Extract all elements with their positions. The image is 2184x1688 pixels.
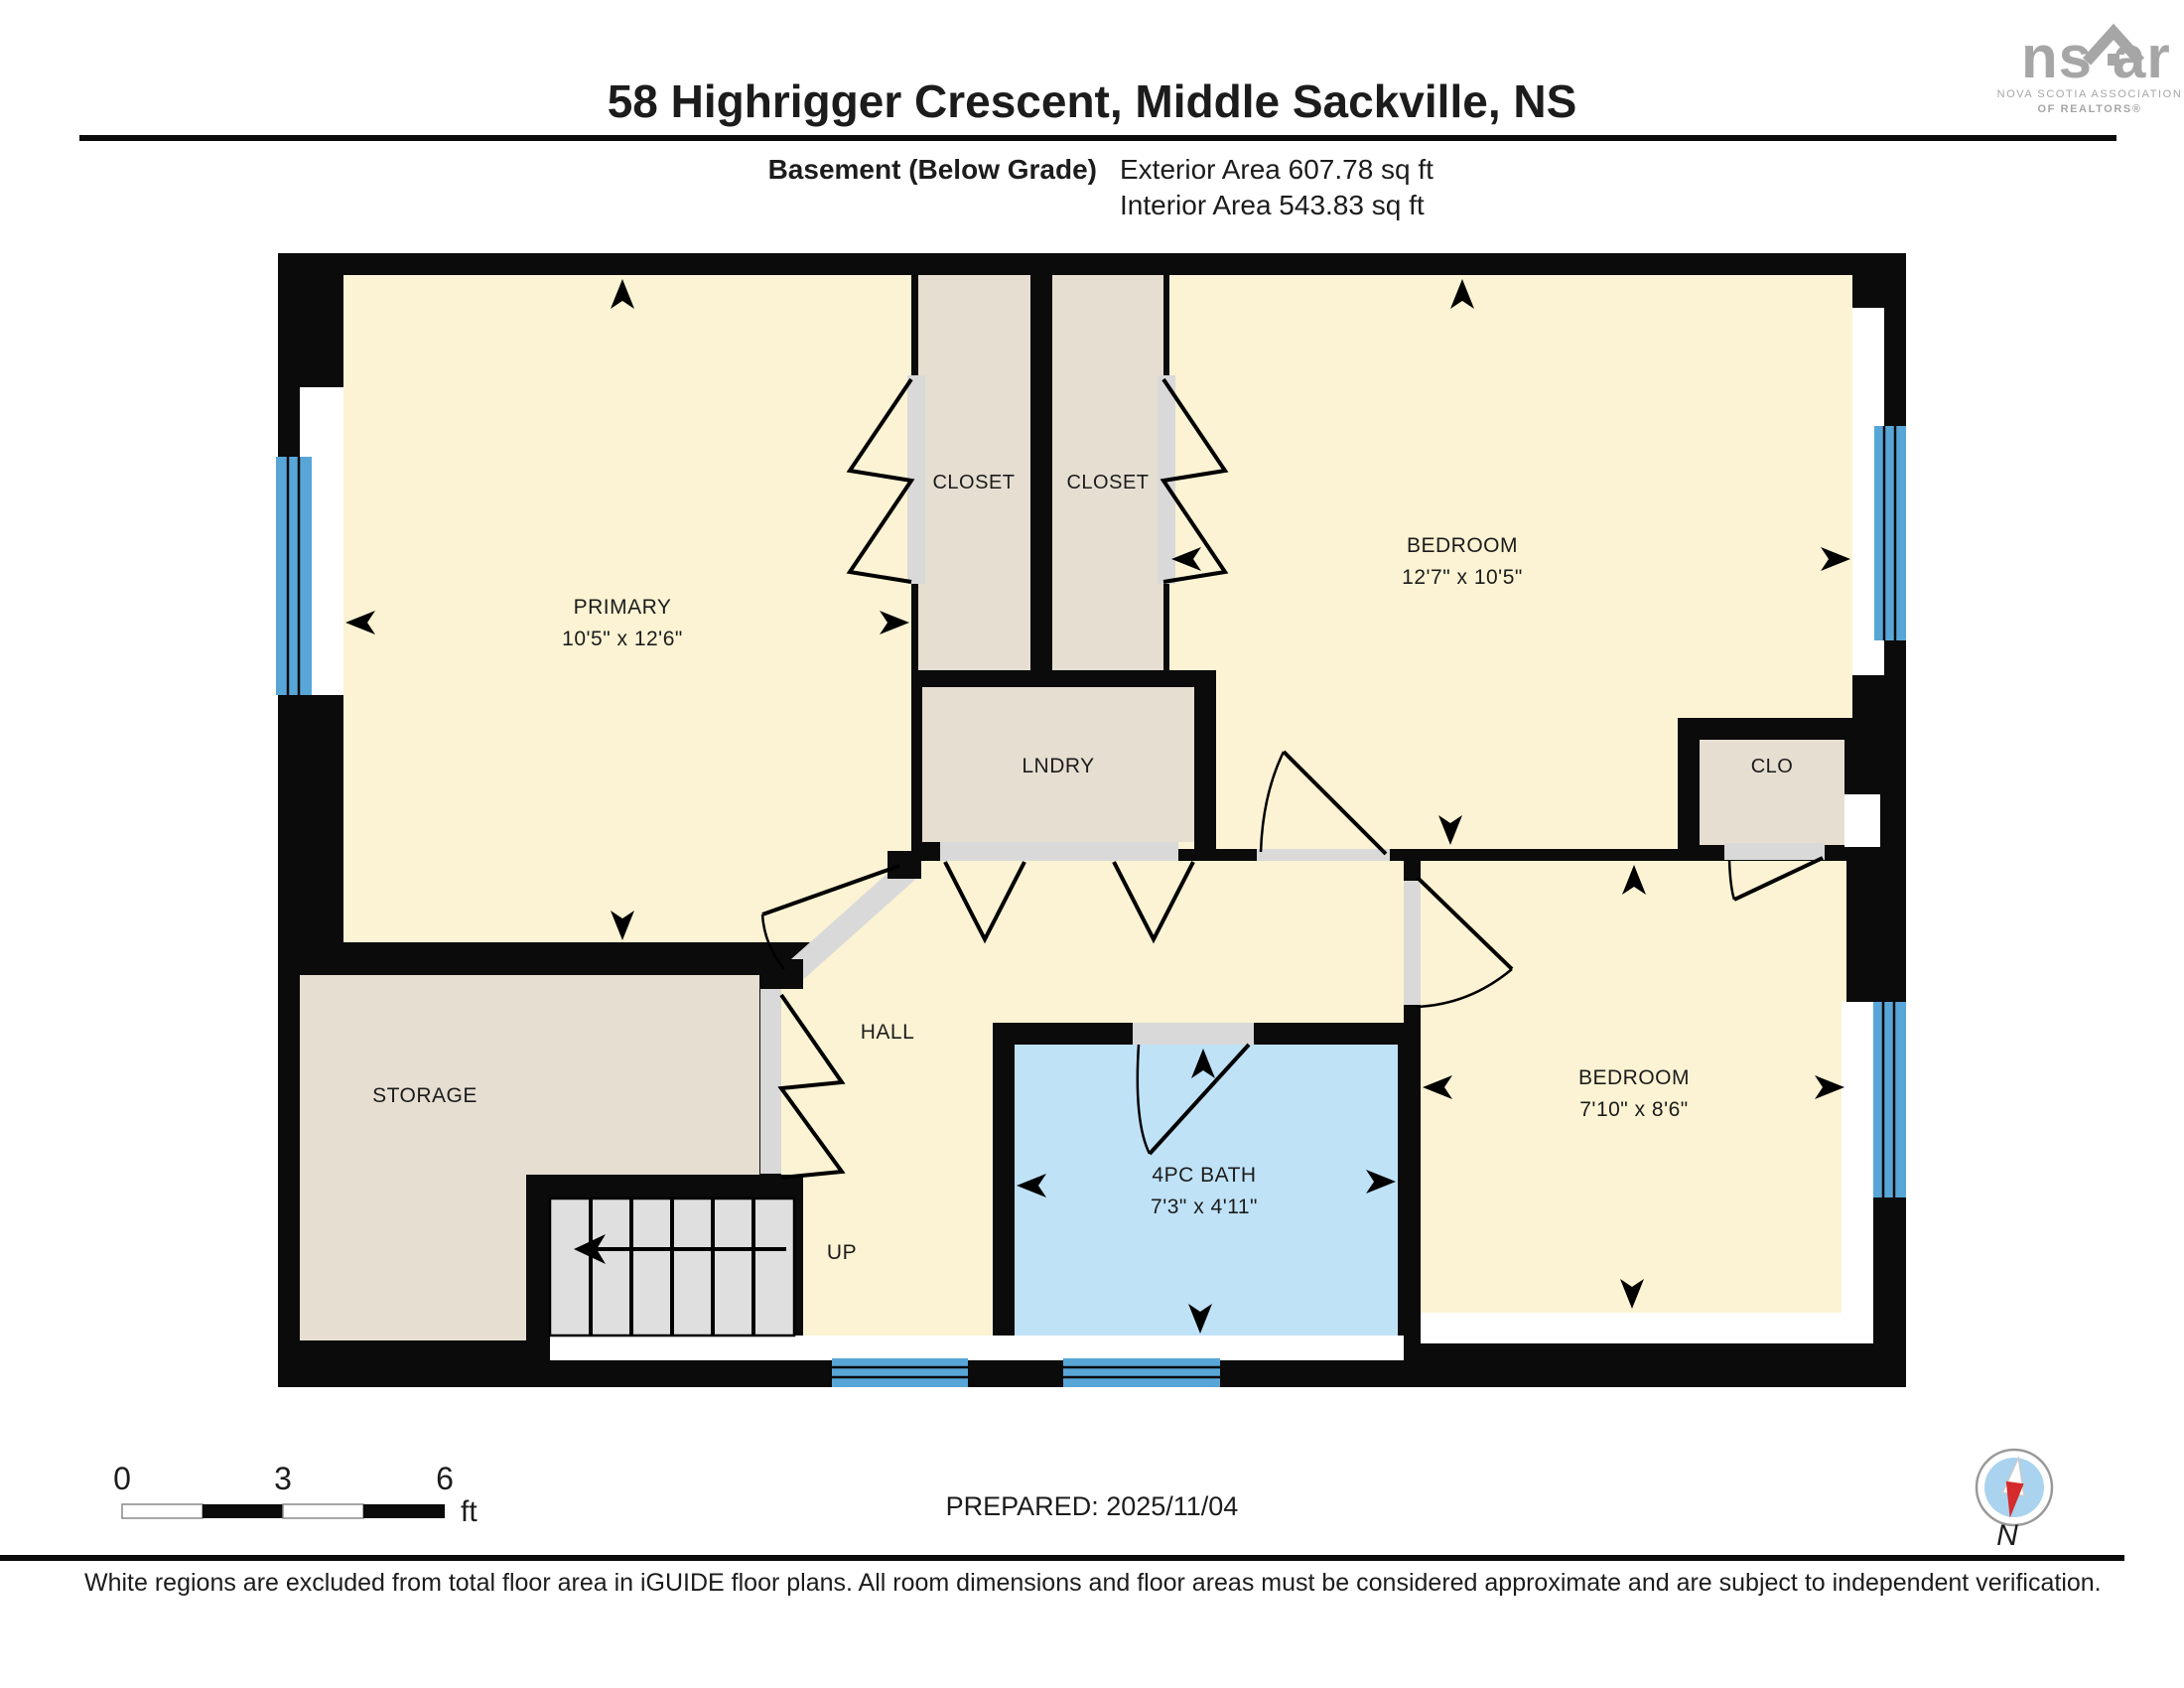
floorplan: PRIMARY 10'5" x 12'6" CLOSET CLOSET BEDR… <box>276 253 1906 1387</box>
door-opening-closet3 <box>1724 843 1825 860</box>
room-bath-floor <box>1015 1045 1398 1336</box>
door-opening-bath <box>1133 1023 1254 1045</box>
label-closet3: CLO <box>1751 756 1794 777</box>
label-bedroom2: BEDROOM <box>1578 1066 1690 1089</box>
diagonal-wall-cap-bottom <box>773 959 803 989</box>
label-bedroom1: BEDROOM <box>1407 534 1518 557</box>
label-primary: PRIMARY <box>574 596 672 619</box>
door-opening-laundry <box>940 842 1178 861</box>
compass-north-label: N <box>1996 1519 2018 1552</box>
scale-tick-3: 3 <box>274 1461 292 1496</box>
nsar-logo-ns: ns <box>2021 24 2093 90</box>
dims-bedroom1: 12'7" x 10'5" <box>1402 566 1523 589</box>
nsar-sub-line2: OF REALTORS® <box>2037 103 2141 115</box>
scale-tick-0: 0 <box>113 1461 131 1496</box>
scale-bar: 0 3 6 ft <box>113 1461 478 1528</box>
dims-bath: 7'3" x 4'11" <box>1151 1196 1258 1218</box>
label-closet2: CLOSET <box>1066 472 1149 493</box>
excluded-region-right-lower <box>1842 1002 1873 1343</box>
label-stairs-up: UP <box>827 1241 857 1264</box>
floor-label: Basement (Below Grade) <box>768 154 1097 185</box>
label-closet1: CLOSET <box>932 472 1015 493</box>
nsar-sub-line1: NOVA SCOTIA ASSOCIATION <box>1997 88 2183 100</box>
label-storage: STORAGE <box>372 1084 478 1107</box>
dims-primary: 10'5" x 12'6" <box>562 628 683 650</box>
door-opening-bedroom1 <box>1257 849 1390 861</box>
window-left <box>276 457 312 695</box>
door-opening-bedroom2 <box>1404 881 1421 1005</box>
wall-closet2-bedroom1 <box>1163 670 1194 687</box>
disclaimer-text: White regions are excluded from total fl… <box>84 1569 2102 1597</box>
scale-tick-6: 6 <box>436 1461 454 1496</box>
compass: N <box>1977 1450 2052 1552</box>
door-opening-storage <box>760 989 781 1174</box>
nsar-logo-ar: ar <box>2113 24 2171 90</box>
label-hall: HALL <box>861 1021 915 1044</box>
label-laundry: LNDRY <box>1022 755 1094 777</box>
wall-laundry-east <box>1194 670 1216 861</box>
excluded-region-bottom-right <box>1421 1313 1842 1343</box>
title-divider <box>79 135 2116 141</box>
exterior-area: Exterior Area 607.78 sq ft <box>1120 154 1433 185</box>
prepared-date: PREPARED: 2025/11/04 <box>946 1491 1239 1521</box>
nsar-logo: ns ar NOVA SCOTIA ASSOCIATION OF REALTOR… <box>1997 24 2183 115</box>
excluded-notch-closet3 <box>1844 794 1880 847</box>
scale-unit: ft <box>461 1495 478 1528</box>
stairs <box>550 1198 794 1336</box>
dims-bedroom2: 7'10" x 8'6" <box>1579 1098 1689 1121</box>
floorplan-page: 58 Highrigger Crescent, Middle Sackville… <box>0 0 2184 1688</box>
window-bottom-right <box>1063 1358 1220 1387</box>
window-bottom-left <box>832 1358 968 1387</box>
diagonal-wall-cap-top <box>887 851 921 879</box>
window-right-lower <box>1873 1002 1906 1197</box>
footer-divider <box>0 1555 2124 1561</box>
label-bath: 4PC BATH <box>1152 1164 1256 1187</box>
page-title: 58 Highrigger Crescent, Middle Sackville… <box>608 75 1577 127</box>
window-right-upper <box>1874 426 1906 640</box>
interior-area: Interior Area 543.83 sq ft <box>1120 190 1425 220</box>
excluded-region-bottom-mid <box>550 1336 1404 1360</box>
